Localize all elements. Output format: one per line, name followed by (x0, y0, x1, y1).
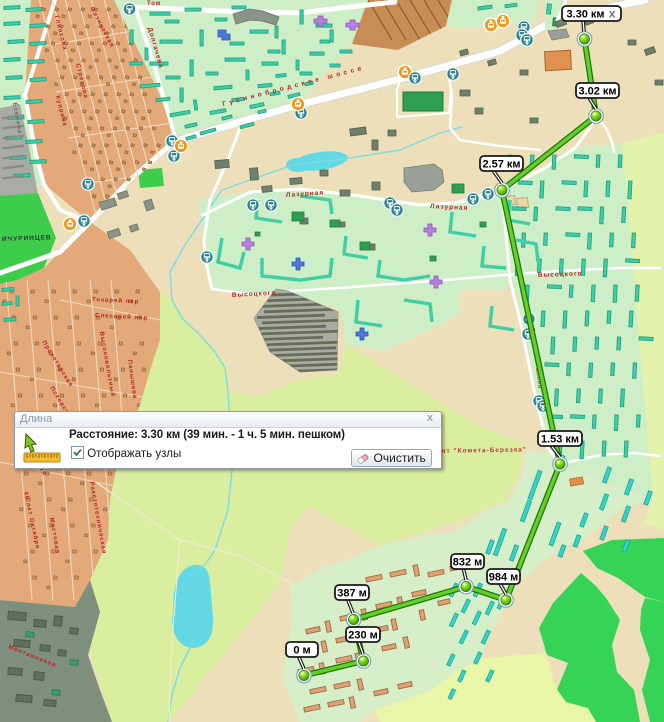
svg-text:387 м: 387 м (337, 588, 367, 600)
svg-text:x: x (609, 9, 616, 21)
svg-text:3.02 км: 3.02 км (578, 86, 616, 98)
svg-text:832 м: 832 м (453, 557, 483, 569)
svg-text:0 м: 0 м (293, 645, 310, 657)
svg-text:984 м: 984 м (489, 572, 519, 584)
svg-text:230 м: 230 м (348, 630, 378, 642)
svg-text:3.30 км: 3.30 км (566, 9, 604, 21)
svg-text:2.57 км: 2.57 км (482, 159, 520, 171)
svg-text:Том: Том (147, 1, 161, 7)
svg-text:1.53 км: 1.53 км (541, 434, 579, 446)
